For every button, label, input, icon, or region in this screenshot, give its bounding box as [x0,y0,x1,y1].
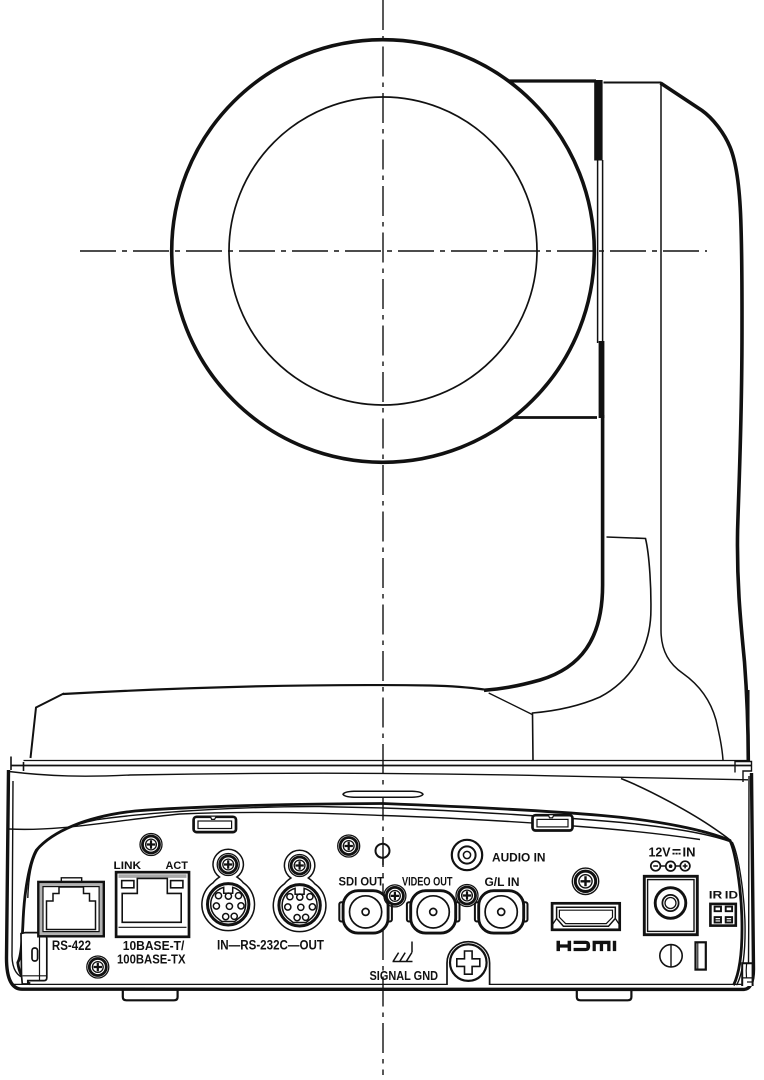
svg-text:SIGNAL GND: SIGNAL GND [370,969,439,983]
svg-text:G/L IN: G/L IN [485,875,520,889]
svg-text:ACT: ACT [166,860,189,872]
svg-text:AUDIO IN: AUDIO IN [492,850,546,864]
svg-text:SDI OUT: SDI OUT [339,874,385,888]
svg-text:100BASE-TX: 100BASE-TX [117,952,186,967]
svg-text:VIDEO OUT: VIDEO OUT [402,874,453,888]
svg-text:RS-422: RS-422 [52,938,91,953]
svg-text:IN: IN [683,845,696,859]
svg-text:IR: IR [709,890,723,902]
svg-text:LINK: LINK [114,860,142,872]
svg-text:ID: ID [725,890,738,902]
svg-text:12V: 12V [649,845,672,859]
svg-text:IN—RS-232C—OUT: IN—RS-232C—OUT [217,937,325,952]
